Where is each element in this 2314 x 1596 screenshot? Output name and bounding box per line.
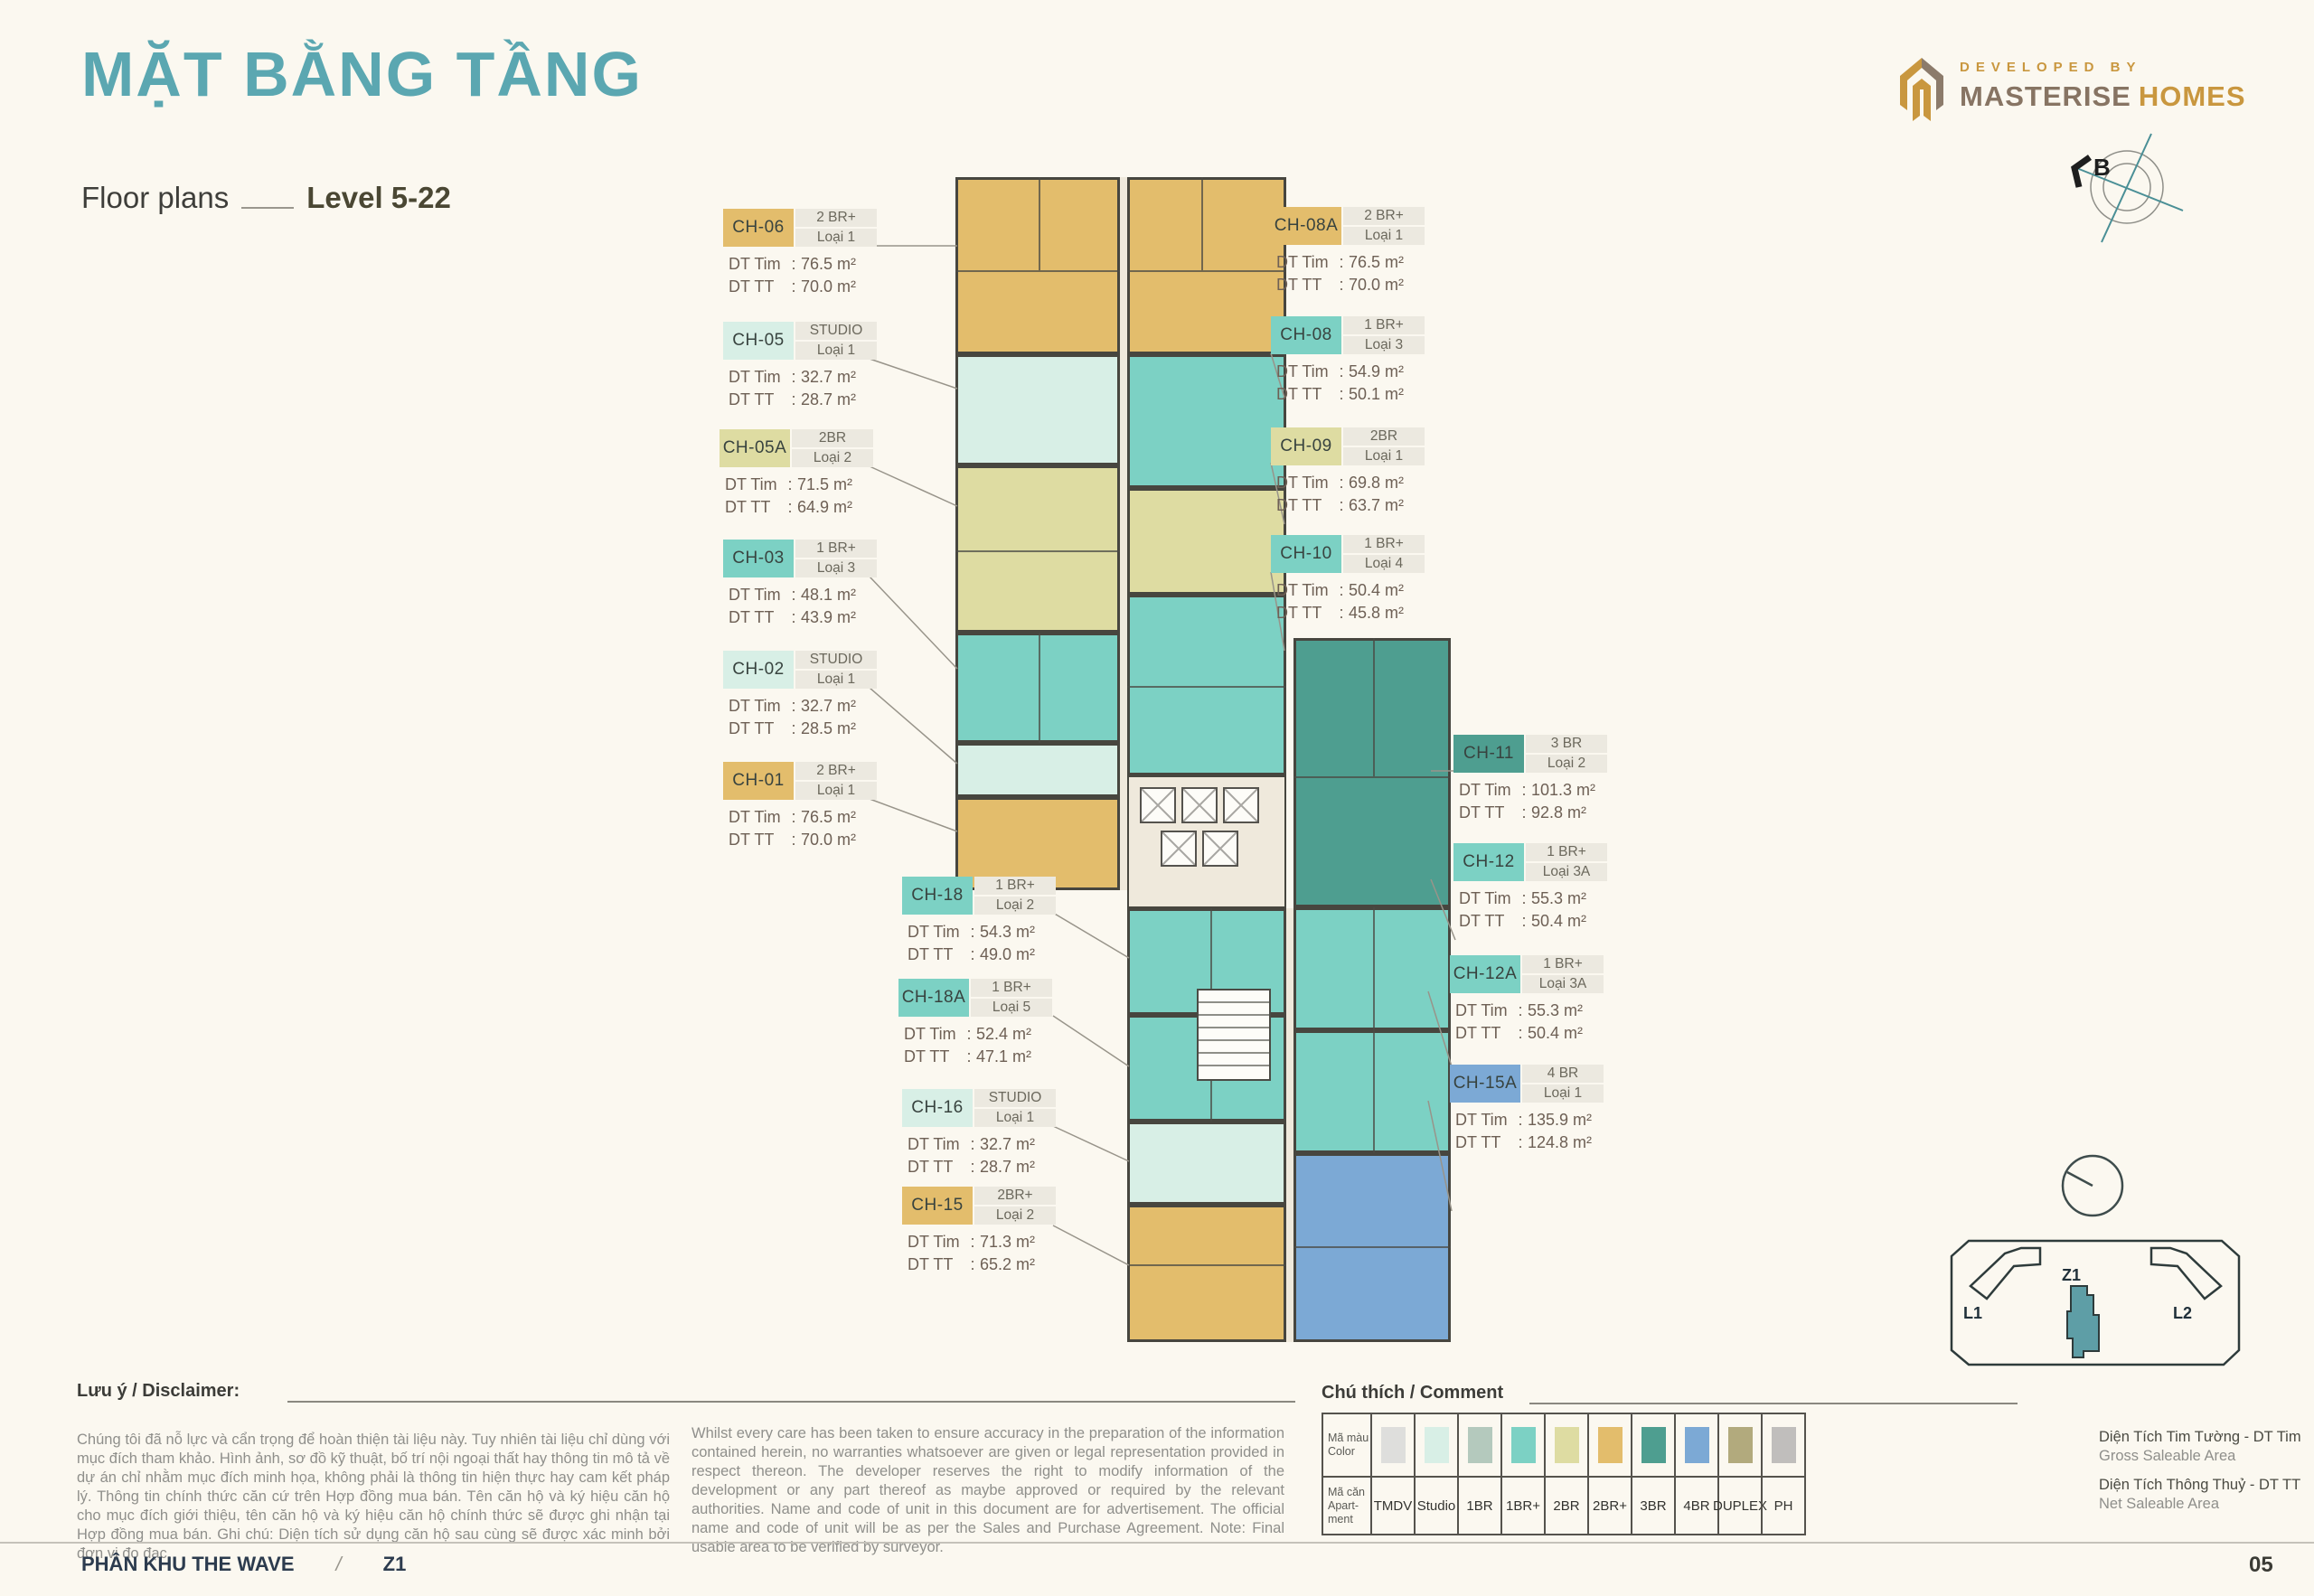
plan-unit-ch12a — [1293, 1030, 1451, 1153]
unit-code-chip: CH-10 — [1271, 535, 1341, 573]
unit-label-chips: CH-01 2 BR+ Loại 1 — [723, 762, 951, 800]
unit-type-chip: STUDIO Loại 1 — [795, 322, 877, 360]
unit-label-ch-12a: CH-12A 1 BR+ Loại 3A DT Tim:55.3 m² DT T… — [1450, 955, 1678, 1045]
unit-variant-label: Loại 2 — [974, 897, 1056, 915]
building-l1-outline — [1971, 1248, 2040, 1299]
plan-unit-ch02 — [955, 743, 1120, 797]
legend-color-swatch — [1468, 1427, 1492, 1463]
unit-variant-label: Loại 2 — [792, 449, 873, 467]
unit-type-label: 1 BR+ — [1343, 316, 1425, 336]
legend-type-label: 2BR+ — [1589, 1478, 1631, 1534]
unit-label-ch-05: CH-05 STUDIO Loại 1 DT Tim:32.7 m² DT TT… — [723, 322, 951, 411]
legend-type-label: 1BR — [1459, 1478, 1500, 1534]
unit-gross-area: DT Tim:55.3 m² — [1455, 1000, 1678, 1022]
unit-gross-area: DT Tim:32.7 m² — [729, 366, 951, 389]
unit-gross-area: DT Tim:71.3 m² — [908, 1231, 1130, 1253]
unit-net-area: DT TT:70.0 m² — [1276, 274, 1499, 296]
unit-type-label: 2 BR+ — [1343, 207, 1425, 227]
unit-gross-area: DT Tim:48.1 m² — [729, 584, 951, 606]
legend-swatch-cell — [1502, 1414, 1544, 1478]
masterise-logo-icon — [1896, 56, 1947, 123]
unit-label-ch-01: CH-01 2 BR+ Loại 1 DT Tim:76.5 m² DT TT:… — [723, 762, 951, 851]
unit-label-chips: CH-06 2 BR+ Loại 1 — [723, 209, 951, 247]
legend-swatch-cell — [1459, 1414, 1500, 1478]
footer-divider-line — [0, 1542, 2314, 1544]
north-arrow — [2074, 157, 2090, 187]
legend-type-label: 3BR — [1632, 1478, 1674, 1534]
unit-label-chips: CH-08 1 BR+ Loại 3 — [1271, 316, 1499, 354]
plan-elevator-core — [1127, 775, 1286, 908]
page-number: 05 — [2249, 1553, 2273, 1578]
unit-areas: DT Tim:69.8 m² DT TT:63.7 m² — [1271, 472, 1499, 517]
unit-variant-label: Loại 1 — [795, 782, 877, 800]
legend-type-label: DUPLEX — [1719, 1478, 1761, 1534]
floor-plan-page: MẶT BẰNG TẦNG Floor plans Level 5-22 DEV… — [0, 0, 2314, 1596]
unit-net-area: DT TT:28.7 m² — [729, 389, 951, 411]
legend-swatch-cell — [1632, 1414, 1674, 1478]
footer-zone-name: PHÂN KHU THE WAVE — [81, 1553, 295, 1576]
legend-column: 2BR+ — [1587, 1414, 1631, 1534]
unit-areas: DT Tim:55.3 m² DT TT:50.4 m² — [1450, 1000, 1678, 1045]
unit-areas: DT Tim:71.3 m² DT TT:65.2 m² — [902, 1231, 1130, 1276]
footer-separator: / — [336, 1553, 342, 1576]
unit-type-chip: 1 BR+ Loại 3A — [1522, 955, 1604, 993]
unit-code-chip: CH-09 — [1271, 427, 1341, 465]
unit-variant-label: Loại 3 — [795, 559, 877, 577]
legend-color-swatch — [1685, 1427, 1709, 1463]
unit-label-chips: CH-03 1 BR+ Loại 3 — [723, 540, 951, 577]
unit-variant-label: Loại 1 — [795, 342, 877, 360]
unit-code-chip: CH-15A — [1450, 1065, 1520, 1103]
area-definition-gross: Diện Tích Tim Tường - DT Tim Gross Salea… — [2099, 1428, 2311, 1466]
legend-column: 3BR — [1631, 1414, 1674, 1534]
legend-swatch-cell — [1546, 1414, 1587, 1478]
unit-code-chip: CH-01 — [723, 762, 794, 800]
developed-by-label: DEVELOPED BY — [1960, 60, 2246, 75]
unit-type-chip: 1 BR+ Loại 5 — [971, 979, 1052, 1017]
legend-columns: TMDV Studio 1BR 1BR+ 2BR 2BR+ 3BR 4BR DU… — [1370, 1414, 1804, 1534]
unit-gross-area: DT Tim:32.7 m² — [729, 695, 951, 718]
unit-areas: DT Tim:76.5 m² DT TT:70.0 m² — [723, 253, 951, 298]
legend-type-label: PH — [1763, 1478, 1804, 1534]
unit-label-ch-06: CH-06 2 BR+ Loại 1 DT Tim:76.5 m² DT TT:… — [723, 209, 951, 298]
legend-column: Studio — [1414, 1414, 1457, 1534]
legend-type-label: 4BR — [1676, 1478, 1717, 1534]
legend-color-swatch — [1381, 1427, 1406, 1463]
area-definition-net: Diện Tích Thông Thuỷ - DT TT Net Saleabl… — [2099, 1476, 2311, 1514]
unit-label-chips: CH-16 STUDIO Loại 1 — [902, 1089, 1130, 1127]
unit-gross-area: DT Tim:76.5 m² — [729, 253, 951, 276]
unit-net-area: DT TT:70.0 m² — [729, 829, 951, 851]
building-z1-shape — [2067, 1286, 2099, 1357]
legend-swatch-cell — [1589, 1414, 1631, 1478]
unit-code-chip: CH-18A — [898, 979, 969, 1017]
legend-column: PH — [1761, 1414, 1804, 1534]
unit-label-ch-10: CH-10 1 BR+ Loại 4 DT Tim:50.4 m² DT TT:… — [1271, 535, 1499, 624]
unit-gross-area: DT Tim:135.9 m² — [1455, 1109, 1678, 1131]
unit-areas: DT Tim:71.5 m² DT TT:64.9 m² — [720, 474, 947, 519]
net-area-label-en: Net Saleable Area — [2099, 1495, 2311, 1514]
legend-color-row-header: Mã màu Color — [1323, 1414, 1370, 1478]
unit-areas: DT Tim:32.7 m² DT TT:28.7 m² — [723, 366, 951, 411]
unit-variant-label: Loại 3A — [1526, 863, 1607, 881]
plan-unit-ch15 — [1127, 1205, 1286, 1342]
unit-type-label: 1 BR+ — [1343, 535, 1425, 555]
unit-type-chip: 2 BR+ Loại 1 — [795, 209, 877, 247]
plan-unit-ch12 — [1293, 907, 1451, 1030]
unit-gross-area: DT Tim:54.3 m² — [908, 921, 1130, 944]
unit-type-label: STUDIO — [795, 322, 877, 342]
legend-color-label-vi: Mã màu — [1328, 1432, 1370, 1445]
plan-unit-ch08 — [1127, 354, 1286, 488]
site-map-z1-label: Z1 — [2062, 1266, 2081, 1284]
legend-column: 4BR — [1674, 1414, 1717, 1534]
unit-type-label: 1 BR+ — [1522, 955, 1604, 975]
unit-label-chips: CH-05 STUDIO Loại 1 — [723, 322, 951, 360]
unit-areas: DT Tim:48.1 m² DT TT:43.9 m² — [723, 584, 951, 629]
unit-label-chips: CH-10 1 BR+ Loại 4 — [1271, 535, 1499, 573]
unit-type-label: 1 BR+ — [1526, 843, 1607, 863]
masterise-logo: DEVELOPED BY MASTERISEHOMES — [1896, 56, 2246, 123]
unit-gross-area: DT Tim:55.3 m² — [1459, 887, 1681, 910]
unit-variant-label: Loại 1 — [974, 1109, 1056, 1127]
plan-unit-ch06 — [955, 177, 1120, 354]
subtitle-divider — [241, 207, 294, 209]
unit-net-area: DT TT:28.7 m² — [908, 1156, 1130, 1178]
unit-variant-label: Loại 4 — [1343, 555, 1425, 573]
plan-unit-ch05 — [955, 354, 1120, 465]
unit-variant-label: Loại 3A — [1522, 975, 1604, 993]
legend-color-swatch — [1598, 1427, 1623, 1463]
unit-variant-label: Loại 1 — [1522, 1084, 1604, 1103]
unit-code-chip: CH-05 — [723, 322, 794, 360]
unit-label-ch-15a: CH-15A 4 BR Loại 1 DT Tim:135.9 m² DT TT… — [1450, 1065, 1678, 1154]
subtitle-floor-plans: Floor plans — [81, 181, 229, 215]
unit-net-area: DT TT:50.4 m² — [1455, 1022, 1678, 1045]
legend-color-swatch — [1641, 1427, 1666, 1463]
north-label: B — [2093, 154, 2111, 181]
unit-net-area: DT TT:124.8 m² — [1455, 1131, 1678, 1154]
legend-swatch-cell — [1719, 1414, 1761, 1478]
plan-corridor-upper — [1120, 177, 1127, 890]
unit-variant-label: Loại 2 — [1526, 755, 1607, 773]
unit-net-area: DT TT:49.0 m² — [908, 944, 1130, 966]
unit-label-chips: CH-11 3 BR Loại 2 — [1453, 735, 1681, 773]
brand-masterise: MASTERISE — [1960, 80, 2131, 112]
unit-code-chip: CH-11 — [1453, 735, 1524, 773]
unit-net-area: DT TT:63.7 m² — [1276, 494, 1499, 517]
unit-net-area: DT TT:47.1 m² — [904, 1046, 1126, 1068]
unit-variant-label: Loại 3 — [1343, 336, 1425, 354]
unit-type-label: 3 BR — [1526, 735, 1607, 755]
legend-color-swatch — [1555, 1427, 1579, 1463]
unit-label-ch-15: CH-15 2BR+ Loại 2 DT Tim:71.3 m² DT TT:6… — [902, 1187, 1130, 1276]
legend-swatch-cell — [1416, 1414, 1457, 1478]
unit-code-chip: CH-16 — [902, 1089, 973, 1127]
legend-type-label: 1BR+ — [1502, 1478, 1544, 1534]
net-area-label-vi: Diện Tích Thông Thuỷ - DT TT — [2099, 1476, 2311, 1495]
unit-gross-area: DT Tim:32.7 m² — [908, 1133, 1130, 1156]
legend-swatch-cell — [1676, 1414, 1717, 1478]
unit-net-area: DT TT:64.9 m² — [725, 496, 947, 519]
unit-areas: DT Tim:135.9 m² DT TT:124.8 m² — [1450, 1109, 1678, 1154]
unit-type-label: 2 BR+ — [795, 762, 877, 782]
unit-type-chip: 1 BR+ Loại 3A — [1526, 843, 1607, 881]
unit-label-ch-02: CH-02 STUDIO Loại 1 DT Tim:32.7 m² DT TT… — [723, 651, 951, 740]
unit-gross-area: DT Tim:54.9 m² — [1276, 361, 1499, 383]
unit-type-chip: 2BR Loại 1 — [1343, 427, 1425, 465]
legend-heading: Chú thích / Comment — [1322, 1383, 1503, 1404]
footer: PHÂN KHU THE WAVE / Z1 — [81, 1553, 406, 1576]
unit-type-chip: 4 BR Loại 1 — [1522, 1065, 1604, 1103]
unit-label-chips: CH-15A 4 BR Loại 1 — [1450, 1065, 1678, 1103]
legend-column: DUPLEX — [1717, 1414, 1761, 1534]
legend-table: Mã màu Color Mã căn Apart- ment TMDV Stu… — [1322, 1413, 1806, 1535]
legend-apartment-label-vi: Mã căn — [1328, 1486, 1370, 1499]
unit-label-chips: CH-15 2BR+ Loại 2 — [902, 1187, 1130, 1225]
unit-areas: DT Tim:76.5 m² DT TT:70.0 m² — [723, 806, 951, 851]
unit-type-label: 2BR — [1343, 427, 1425, 447]
legend-swatch-cell — [1763, 1414, 1804, 1478]
unit-label-ch-18a: CH-18A 1 BR+ Loại 5 DT Tim:52.4 m² DT TT… — [898, 979, 1126, 1068]
disclaimer-vietnamese: Chúng tôi đã nỗ lực và cẩn trọng để hoàn… — [77, 1431, 670, 1563]
site-map-l2-label: L2 — [2173, 1304, 2192, 1322]
legend-color-swatch — [1511, 1427, 1536, 1463]
brand-name: MASTERISEHOMES — [1960, 80, 2246, 113]
unit-type-label: 2 BR+ — [795, 209, 877, 229]
unit-label-ch-18: CH-18 1 BR+ Loại 2 DT Tim:54.3 m² DT TT:… — [902, 877, 1130, 966]
unit-areas: DT Tim:76.5 m² DT TT:70.0 m² — [1271, 251, 1499, 296]
plan-unit-ch16 — [1127, 1122, 1286, 1205]
unit-type-chip: STUDIO Loại 1 — [795, 651, 877, 689]
unit-variant-label: Loại 1 — [795, 671, 877, 689]
unit-code-chip: CH-03 — [723, 540, 794, 577]
unit-type-label: 4 BR — [1522, 1065, 1604, 1084]
unit-areas: DT Tim:52.4 m² DT TT:47.1 m² — [898, 1023, 1126, 1068]
unit-label-chips: CH-09 2BR Loại 1 — [1271, 427, 1499, 465]
unit-label-ch-08: CH-08 1 BR+ Loại 3 DT Tim:54.9 m² DT TT:… — [1271, 316, 1499, 406]
unit-net-area: DT TT:50.4 m² — [1459, 910, 1681, 933]
unit-label-ch-05a: CH-05A 2BR Loại 2 DT Tim:71.5 m² DT TT:6… — [720, 429, 947, 519]
disclaimer-underline — [287, 1401, 1295, 1403]
unit-areas: DT Tim:55.3 m² DT TT:50.4 m² — [1453, 887, 1681, 933]
unit-type-chip: 1 BR+ Loại 3 — [795, 540, 877, 577]
unit-gross-area: DT Tim:71.5 m² — [725, 474, 947, 496]
unit-code-chip: CH-08A — [1271, 207, 1341, 245]
unit-gross-area: DT Tim:101.3 m² — [1459, 779, 1681, 802]
unit-code-chip: CH-08 — [1271, 316, 1341, 354]
legend-column: 1BR — [1457, 1414, 1500, 1534]
unit-type-label: 2BR — [792, 429, 873, 449]
unit-net-area: DT TT:45.8 m² — [1276, 602, 1499, 624]
unit-label-chips: CH-02 STUDIO Loại 1 — [723, 651, 951, 689]
disclaimer-heading: Lưu ý / Disclaimer: — [77, 1381, 240, 1402]
unit-label-chips: CH-05A 2BR Loại 2 — [720, 429, 947, 467]
unit-label-chips: CH-18A 1 BR+ Loại 5 — [898, 979, 1126, 1017]
unit-type-chip: 1 BR+ Loại 4 — [1343, 535, 1425, 573]
unit-gross-area: DT Tim:76.5 m² — [729, 806, 951, 829]
unit-label-chips: CH-08A 2 BR+ Loại 1 — [1271, 207, 1499, 245]
unit-variant-label: Loại 5 — [971, 999, 1052, 1017]
unit-type-chip: 2BR Loại 2 — [792, 429, 873, 467]
legend-type-label: TMDV — [1372, 1478, 1414, 1534]
unit-type-label: 1 BR+ — [795, 540, 877, 559]
brand-homes: HOMES — [2139, 80, 2246, 112]
unit-areas: DT Tim:50.4 m² DT TT:45.8 m² — [1271, 579, 1499, 624]
unit-label-chips: CH-12 1 BR+ Loại 3A — [1453, 843, 1681, 881]
unit-net-area: DT TT:65.2 m² — [908, 1253, 1130, 1276]
unit-label-ch-08a: CH-08A 2 BR+ Loại 1 DT Tim:76.5 m² DT TT… — [1271, 207, 1499, 296]
legend-type-label: 2BR — [1546, 1478, 1587, 1534]
subtitle-level: Level 5-22 — [306, 181, 451, 215]
unit-variant-label: Loại 1 — [795, 229, 877, 247]
unit-variant-label: Loại 2 — [974, 1206, 1056, 1225]
footer-tower-code: Z1 — [383, 1553, 407, 1576]
unit-areas: DT Tim:54.9 m² DT TT:50.1 m² — [1271, 361, 1499, 406]
site-map-border — [1952, 1241, 2239, 1365]
legend-apartment-row-header: Mã căn Apart- ment — [1323, 1478, 1370, 1534]
plan-unit-ch09 — [1127, 488, 1286, 595]
legend-apartment-label-en: Apart- — [1328, 1499, 1370, 1513]
unit-code-chip: CH-06 — [723, 209, 794, 247]
unit-gross-area: DT Tim:50.4 m² — [1276, 579, 1499, 602]
masterise-logo-text: DEVELOPED BY MASTERISEHOMES — [1960, 56, 2246, 113]
unit-code-chip: CH-15 — [902, 1187, 973, 1225]
unit-net-area: DT TT:70.0 m² — [729, 276, 951, 298]
site-map-l1-label: L1 — [1963, 1304, 1982, 1322]
plan-unit-ch03 — [955, 633, 1120, 743]
disclaimer-english: Whilst every care has been taken to ensu… — [691, 1424, 1284, 1557]
legend-type-label: Studio — [1416, 1478, 1457, 1534]
unit-areas: DT Tim:32.7 m² DT TT:28.7 m² — [902, 1133, 1130, 1178]
legend-row-headers: Mã màu Color Mã căn Apart- ment — [1323, 1414, 1370, 1534]
plan-unit-ch18 — [1127, 908, 1286, 1015]
unit-code-chip: CH-12A — [1450, 955, 1520, 993]
compass-icon: B — [2074, 134, 2183, 242]
legend-column: 1BR+ — [1500, 1414, 1544, 1534]
unit-type-label: 1 BR+ — [971, 979, 1052, 999]
gross-area-label-vi: Diện Tích Tim Tường - DT Tim — [2099, 1428, 2311, 1447]
unit-code-chip: CH-05A — [720, 429, 790, 467]
plan-unit-ch10 — [1127, 595, 1286, 775]
unit-label-ch-03: CH-03 1 BR+ Loại 3 DT Tim:48.1 m² DT TT:… — [723, 540, 951, 629]
unit-type-label: 2BR+ — [974, 1187, 1056, 1206]
unit-type-chip: 1 BR+ Loại 2 — [974, 877, 1056, 915]
unit-code-chip: CH-02 — [723, 651, 794, 689]
unit-variant-label: Loại 1 — [1343, 447, 1425, 465]
unit-code-chip: CH-12 — [1453, 843, 1524, 881]
legend-column: TMDV — [1370, 1414, 1414, 1534]
page-subtitle: Floor plans Level 5-22 — [81, 181, 451, 215]
plan-unit-ch08a — [1127, 177, 1286, 354]
unit-net-area: DT TT:43.9 m² — [729, 606, 951, 629]
legend-underline — [1529, 1403, 2018, 1404]
unit-label-chips: CH-18 1 BR+ Loại 2 — [902, 877, 1130, 915]
plan-unit-ch18a — [1127, 1015, 1286, 1122]
unit-type-chip: 2BR+ Loại 2 — [974, 1187, 1056, 1225]
unit-code-chip: CH-18 — [902, 877, 973, 915]
unit-type-chip: 1 BR+ Loại 3 — [1343, 316, 1425, 354]
building-l2-outline — [2151, 1248, 2221, 1299]
legend-apartment-label-en2: ment — [1328, 1513, 1370, 1526]
site-map: Z1 L1 L2 — [1952, 1241, 2239, 1365]
unit-variant-label: Loại 1 — [1343, 227, 1425, 245]
unit-type-label: STUDIO — [795, 651, 877, 671]
gross-area-label-en: Gross Saleable Area — [2099, 1447, 2311, 1466]
legend-column: 2BR — [1544, 1414, 1587, 1534]
plan-unit-ch15a — [1293, 1153, 1451, 1342]
unit-label-chips: CH-12A 1 BR+ Loại 3A — [1450, 955, 1678, 993]
dial-icon — [2063, 1156, 2122, 1216]
unit-type-chip: 3 BR Loại 2 — [1526, 735, 1607, 773]
unit-net-area: DT TT:92.8 m² — [1459, 802, 1681, 824]
unit-gross-area: DT Tim:69.8 m² — [1276, 472, 1499, 494]
unit-gross-area: DT Tim:52.4 m² — [904, 1023, 1126, 1046]
unit-areas: DT Tim:54.3 m² DT TT:49.0 m² — [902, 921, 1130, 966]
unit-label-ch-12: CH-12 1 BR+ Loại 3A DT Tim:55.3 m² DT TT… — [1453, 843, 1681, 933]
unit-areas: DT Tim:101.3 m² DT TT:92.8 m² — [1453, 779, 1681, 824]
legend-swatch-cell — [1372, 1414, 1414, 1478]
page-title: MẶT BẰNG TẦNG — [81, 38, 643, 110]
plan-corridor-lower — [1286, 908, 1293, 1342]
unit-net-area: DT TT:50.1 m² — [1276, 383, 1499, 406]
legend-color-label-en: Color — [1328, 1445, 1370, 1459]
unit-gross-area: DT Tim:76.5 m² — [1276, 251, 1499, 274]
unit-areas: DT Tim:32.7 m² DT TT:28.5 m² — [723, 695, 951, 740]
unit-type-chip: 2 BR+ Loại 1 — [1343, 207, 1425, 245]
unit-label-ch-11: CH-11 3 BR Loại 2 DT Tim:101.3 m² DT TT:… — [1453, 735, 1681, 824]
unit-type-label: 1 BR+ — [974, 877, 1056, 897]
unit-type-label: STUDIO — [974, 1089, 1056, 1109]
plan-unit-ch11 — [1293, 638, 1451, 907]
unit-type-chip: 2 BR+ Loại 1 — [795, 762, 877, 800]
legend-color-swatch — [1728, 1427, 1753, 1463]
plan-unit-ch05a — [955, 465, 1120, 633]
legend-color-swatch — [1425, 1427, 1449, 1463]
unit-net-area: DT TT:28.5 m² — [729, 718, 951, 740]
unit-label-ch-09: CH-09 2BR Loại 1 DT Tim:69.8 m² DT TT:63… — [1271, 427, 1499, 517]
unit-type-chip: STUDIO Loại 1 — [974, 1089, 1056, 1127]
unit-label-ch-16: CH-16 STUDIO Loại 1 DT Tim:32.7 m² DT TT… — [902, 1089, 1130, 1178]
legend-color-swatch — [1772, 1427, 1796, 1463]
